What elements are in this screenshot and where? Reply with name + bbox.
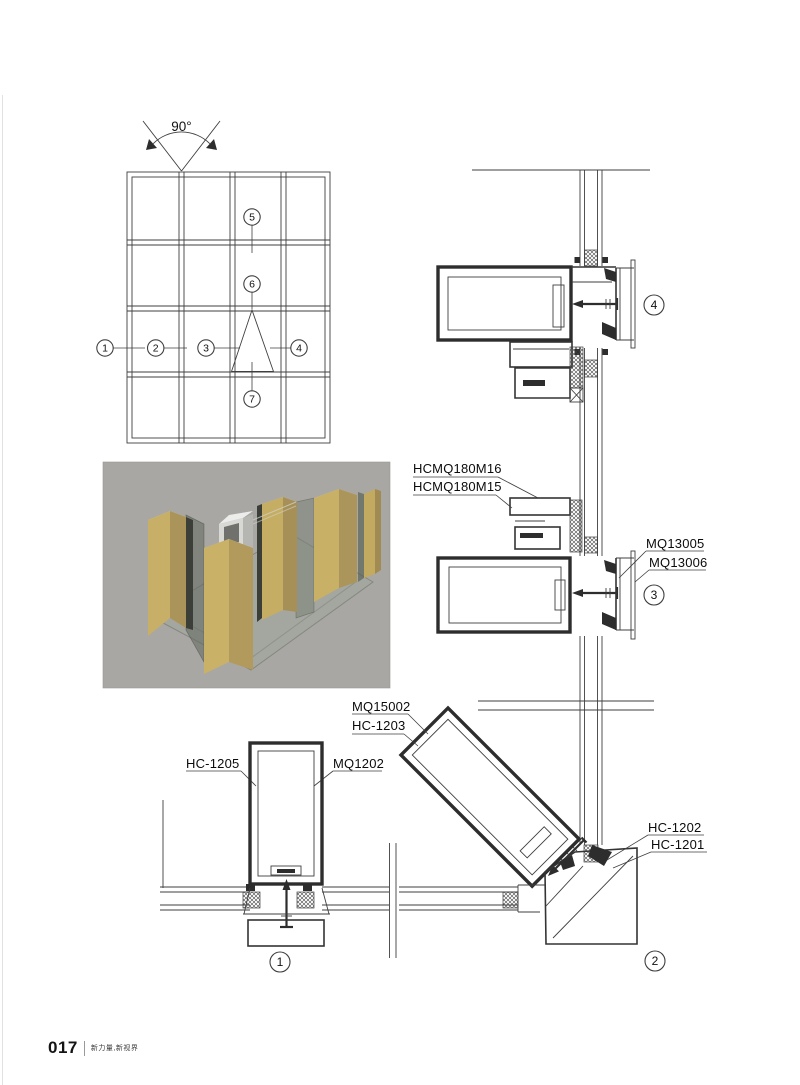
corner-cover	[545, 848, 637, 944]
elevation-callout-7: 7	[244, 362, 260, 407]
glazing-spacer	[503, 892, 518, 908]
detail-3: HCMQ180M16 HCMQ180M15	[413, 461, 708, 639]
label-mq15002: MQ15002	[352, 699, 411, 714]
detail-2: MQ15002 HC-1203 HC-1202 HC-1201 2	[352, 699, 707, 971]
svg-text:3: 3	[651, 588, 658, 602]
footer-tagline: 新力量,新视界	[91, 1043, 138, 1053]
glazing-spacer	[585, 360, 598, 377]
elevation-callout-4: 4	[270, 340, 307, 356]
elevation-callout-1: 1	[97, 340, 145, 356]
detail-callout-3: 3	[644, 585, 664, 605]
svg-text:4: 4	[296, 343, 302, 355]
label-hcmq180m16: HCMQ180M16	[413, 461, 502, 476]
angle-label: 90°	[171, 119, 191, 134]
glazing-spacer	[585, 250, 598, 266]
transom-profile-box	[438, 267, 571, 340]
gasket-column	[570, 347, 583, 388]
arc-arrow-right	[206, 139, 217, 150]
screw-detail4	[572, 298, 617, 310]
break-lines	[390, 701, 655, 958]
label-hc1202: HC-1202	[648, 820, 701, 835]
stack-joint-profile	[510, 498, 570, 515]
label-mq13006: MQ13006	[649, 555, 708, 570]
render-gasket-strip	[358, 492, 364, 582]
label-mq1202: MQ1202	[333, 756, 384, 771]
label-hc1203: HC-1203	[352, 718, 405, 733]
svg-text:2: 2	[652, 954, 659, 968]
render-3d	[103, 462, 390, 688]
cover-plate	[631, 260, 635, 348]
drawing-canvas: 90° 1 2 3 4 5	[0, 0, 800, 1085]
footer-divider	[84, 1041, 85, 1056]
elevation-callout-5: 5	[244, 209, 260, 253]
detail-callout-4: 4	[644, 295, 664, 315]
diagonal-corner-mullion	[401, 708, 579, 886]
screw-detail3	[572, 587, 617, 599]
detail-4: 4	[438, 260, 664, 402]
elevation-callout-6: 6	[244, 276, 260, 309]
svg-text:3: 3	[203, 343, 209, 355]
glazing-spacer	[585, 537, 598, 553]
render-glass-right	[296, 498, 314, 618]
gasket-column	[570, 500, 582, 552]
angle-annotation: 90°	[143, 119, 220, 171]
label-hc1205: HC-1205	[186, 756, 239, 771]
arc-arrow-left	[146, 139, 157, 150]
vent-opening-symbol	[232, 310, 274, 372]
transom-profile-box	[438, 558, 570, 632]
svg-text:5: 5	[249, 212, 255, 224]
detail-callout-1: 1	[270, 952, 290, 972]
label-mq13005: MQ13005	[646, 536, 705, 551]
svg-text:4: 4	[651, 298, 658, 312]
label-hcmq180m15: HCMQ180M15	[413, 479, 502, 494]
glazing-spacer	[297, 892, 314, 908]
svg-text:1: 1	[102, 343, 108, 355]
elevation-callout-2: 2	[148, 340, 188, 356]
sub-profile	[510, 342, 572, 367]
mullion-cover-box	[250, 743, 322, 884]
elevation-grid	[127, 172, 330, 443]
detail-1: HC-1205 MQ1202	[160, 743, 389, 972]
elevation-callout-3: 3	[198, 340, 240, 356]
label-hc1201: HC-1201	[651, 837, 704, 852]
page-footer: 017 新力量,新视界	[48, 1038, 138, 1058]
page-number: 017	[48, 1038, 78, 1058]
catalog-page: 90° 1 2 3 4 5	[0, 0, 800, 1085]
svg-text:6: 6	[249, 279, 255, 291]
svg-text:7: 7	[249, 394, 255, 406]
svg-text:2: 2	[153, 343, 159, 355]
detail-callout-2: 2	[645, 951, 665, 971]
svg-text:1: 1	[277, 955, 284, 969]
